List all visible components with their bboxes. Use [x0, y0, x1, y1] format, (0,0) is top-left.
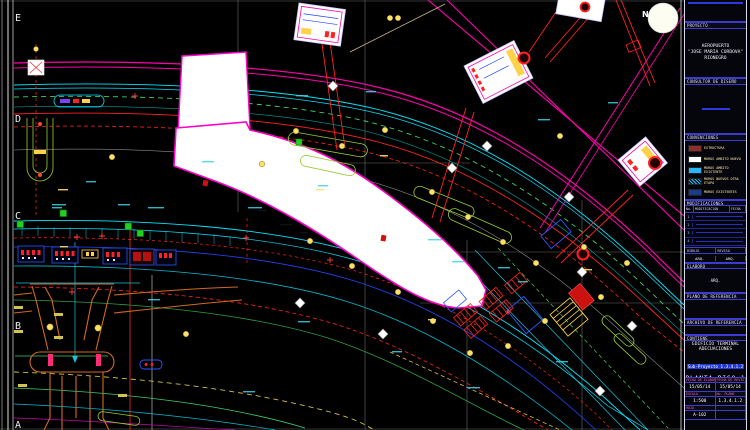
reference-plan-header: PLANO DE REFERENCIA [685, 293, 746, 300]
legend-item: MUROS EXISTENTES [688, 187, 744, 198]
grid-row-labels: E D C B A [15, 13, 21, 430]
revisions-table: No. MODIFICACION FECHA 1 2 3 4 5 [685, 206, 746, 248]
table-row: 2 [685, 221, 746, 229]
concourse-band [174, 52, 486, 308]
subproject-code: Sub-Proyecto 1.3.4.1.2 [687, 364, 744, 370]
elaborated-value: ARQ. [685, 269, 746, 293]
legend-item: MUROS AMBITO NUEVO [688, 154, 744, 165]
cad-canvas: E D C B A N [0, 0, 684, 430]
table-row: 1 [685, 213, 746, 221]
reference-file-header: ARCHIVO DE REFERENCIA [685, 319, 746, 326]
consultant-header: CONSULTOR DE DISEÑO [685, 78, 746, 85]
project-name: AEROPUERTO "JOSE MARIA CORDOVA" RIONEGRO [685, 29, 746, 78]
roadside-box [28, 60, 44, 75]
meta-table: FECHA DE ELABORACION FECHA DE REVISION 1… [685, 378, 746, 430]
grid-row-label-a: A [15, 420, 21, 430]
legend: ESTRUCTURA MUROS AMBITO NUEVO MUROS AMBI… [685, 141, 746, 200]
grid-row-label-e: E [15, 13, 21, 24]
grid-row-label-b: B [15, 321, 21, 332]
reference-file-box [685, 326, 746, 335]
revisions-columns: No. MODIFICACION FECHA [685, 206, 746, 213]
meta-value-row: 15/05/14 15/05/14 [685, 383, 746, 392]
meta-value-row: 1:500 1.3.4.1.2 [685, 397, 746, 406]
grid-row-label-d: D [15, 114, 21, 125]
project-header: PROYECTO [685, 22, 746, 29]
table-row: 4 [685, 238, 746, 246]
sheet-title: PLANTA PISO 1 [685, 375, 746, 378]
table-row: 3 [685, 229, 746, 237]
north-label: N [642, 10, 649, 19]
legend-item: MUROS NUEVOS OTRA ETAPA [688, 176, 744, 187]
building-name: EDIFICIO TERMINAL ADECUACIONES [685, 342, 746, 353]
cad-sheet: E D C B A N PROYECTO AEROPUERTO "JOSE MA… [0, 0, 750, 430]
transit-stop [140, 360, 162, 369]
sheet-contents: EDIFICIO TERMINAL ADECUACIONES Sub-Proye… [685, 341, 746, 378]
legend-item: ESTRUCTURA [688, 143, 744, 154]
legend-item: MUROS AMBITO EXISTENTE [688, 165, 744, 176]
consultant-logo [685, 85, 746, 134]
grid-row-label-c: C [15, 211, 21, 222]
north-arrow-icon: N [642, 3, 678, 33]
legend-header: CONVENCIONES [685, 134, 746, 141]
road-diagonals [350, 0, 684, 233]
drawn-review-values: ARQ. ARQ. [685, 254, 746, 263]
meta-value-row: A-102 [685, 411, 746, 420]
title-block-top-strip [685, 0, 746, 22]
apron-arcs [14, 248, 668, 430]
title-block: PROYECTO AEROPUERTO "JOSE MARIA CORDOVA"… [684, 0, 747, 430]
reference-plan-box [685, 300, 746, 319]
checkin-blocks [18, 246, 176, 265]
